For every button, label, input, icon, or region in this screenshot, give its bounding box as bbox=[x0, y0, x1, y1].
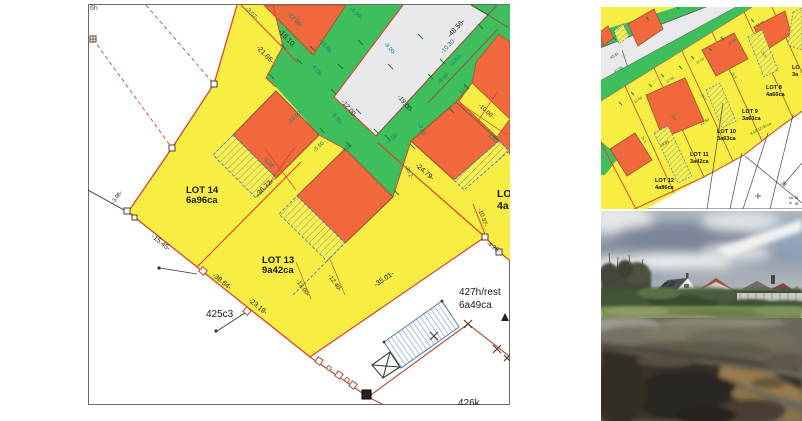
svg-text:4a: 4a bbox=[497, 200, 509, 212]
svg-text:9a42ca: 9a42ca bbox=[262, 265, 294, 276]
svg-text:426k: 426k bbox=[458, 398, 481, 405]
svg-text:LO: LO bbox=[792, 65, 800, 71]
svg-text:LOT 10: LOT 10 bbox=[717, 129, 736, 135]
svg-text:LOT 8: LOT 8 bbox=[766, 85, 782, 91]
svg-text:3a42ca: 3a42ca bbox=[690, 159, 710, 165]
svg-text:6h: 6h bbox=[90, 5, 98, 12]
svg-text:6a96ca: 6a96ca bbox=[186, 195, 218, 206]
svg-text:4a86ca: 4a86ca bbox=[655, 185, 675, 191]
svg-text:425c3: 425c3 bbox=[206, 309, 234, 320]
svg-text:al: al bbox=[789, 201, 792, 205]
svg-text:3a63ca: 3a63ca bbox=[717, 136, 737, 142]
svg-text:LOT 9: LOT 9 bbox=[742, 109, 758, 115]
svg-text:6a49ca: 6a49ca bbox=[459, 300, 492, 311]
svg-text:427h/rest: 427h/rest bbox=[459, 287, 501, 298]
svg-text:al: al bbox=[795, 201, 799, 206]
svg-text:4a60ca: 4a60ca bbox=[766, 92, 786, 98]
svg-text:LO: LO bbox=[497, 188, 510, 200]
svg-text:3a: 3a bbox=[792, 72, 799, 78]
svg-text:3a63ca: 3a63ca bbox=[742, 116, 762, 122]
svg-text:LOT 11: LOT 11 bbox=[690, 152, 709, 158]
svg-text:LOT 12: LOT 12 bbox=[655, 178, 674, 184]
